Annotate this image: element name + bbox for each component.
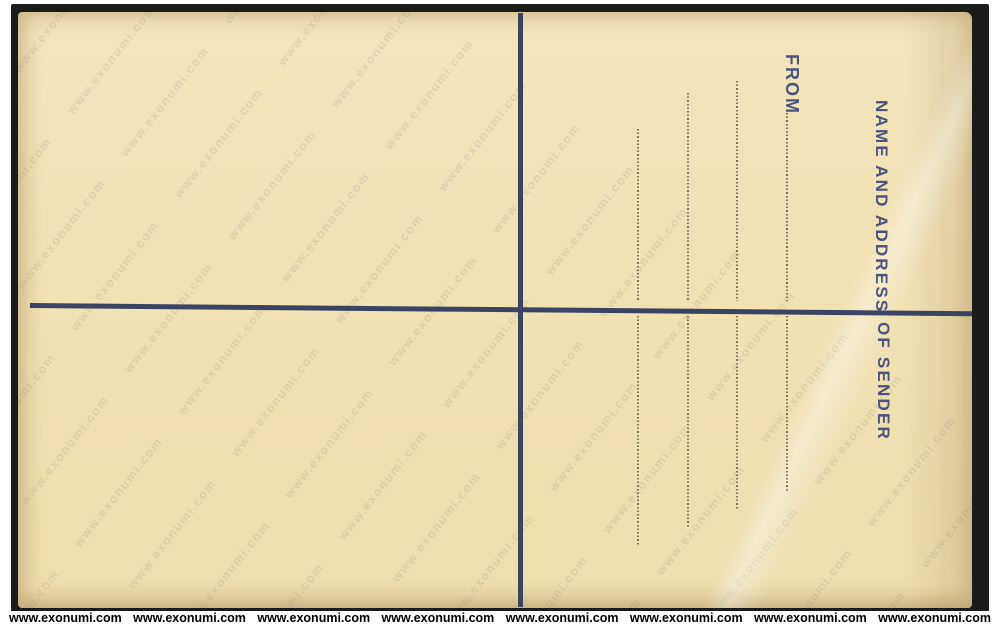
dotted-address-line [687,93,689,301]
dotted-address-line [687,316,689,527]
footer-watermark-text: www.exonumi.com [506,612,619,625]
footer-watermark-text: www.exonumi.com [382,612,495,625]
dotted-address-line [637,316,639,545]
dotted-address-line [637,129,639,301]
footer-watermark-text: www.exonumi.com [9,612,122,625]
dotted-address-line [786,316,788,491]
dotted-address-line [736,316,738,509]
dotted-from-leader-line [786,113,788,301]
dotted-address-line [736,81,738,301]
footer-watermark-text: www.exonumi.com [630,612,743,625]
footer-watermark-text: www.exonumi.com [133,612,246,625]
footer-watermark-text: www.exonumi.com [878,612,991,625]
footer-watermark-text: www.exonumi.com [257,612,370,625]
scanned-envelope-page: www.exonumi.com www.exonumi.com www.exon… [0,0,1000,625]
footer-watermark-strip: www.exonumi.com www.exonumi.com www.exon… [0,611,1000,625]
footer-watermark-text: www.exonumi.com [754,612,867,625]
sender-label-line2: OF SENDER [873,322,893,441]
from-label: FROM [781,54,802,115]
sender-label-line1: NAME AND ADDRESS [871,100,891,313]
